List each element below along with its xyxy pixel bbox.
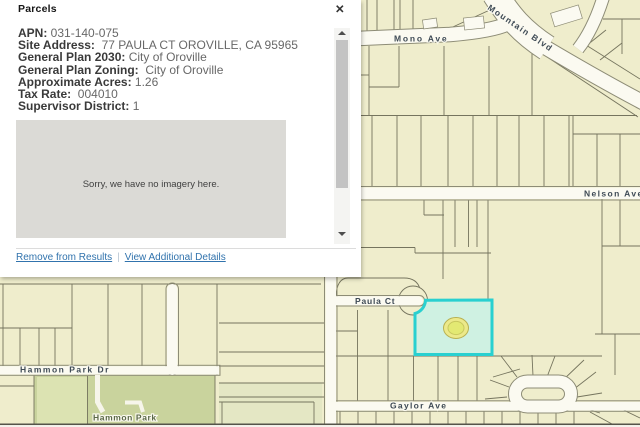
svg-text:Gaylor Ave: Gaylor Ave <box>390 401 447 411</box>
svg-text:Mono Ave: Mono Ave <box>394 34 448 44</box>
svg-text:Paula Ct: Paula Ct <box>355 296 395 306</box>
svg-text:Hammon Park Dr: Hammon Park Dr <box>20 365 110 375</box>
svg-text:Nelson Ave: Nelson Ave <box>584 189 640 199</box>
svg-text:Hammon Park: Hammon Park <box>93 413 157 423</box>
